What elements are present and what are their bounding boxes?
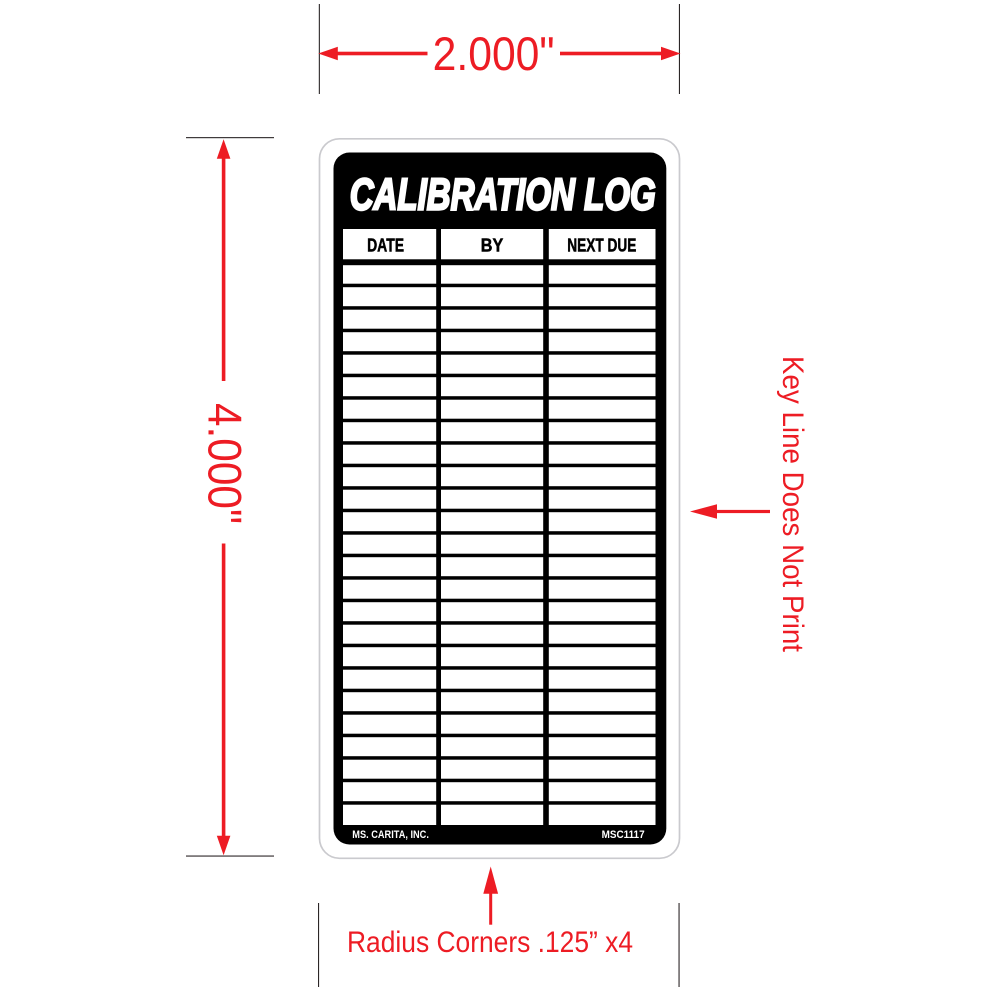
svg-text:NEXT DUE: NEXT DUE [567,235,636,256]
svg-text:MS. CARITA, INC.: MS. CARITA, INC. [352,829,429,841]
svg-text:4.000": 4.000" [199,403,252,524]
svg-text:CALIBRATION LOG: CALIBRATION LOG [350,170,656,219]
svg-text:MSC1117: MSC1117 [602,829,645,841]
svg-text:BY: BY [481,235,504,256]
svg-text:DATE: DATE [367,235,404,256]
svg-text:Key Line Does Not Print: Key Line Does Not Print [776,356,809,653]
svg-text:2.000": 2.000" [433,27,555,80]
svg-text:Radius Corners .125” x4: Radius Corners .125” x4 [347,926,633,959]
